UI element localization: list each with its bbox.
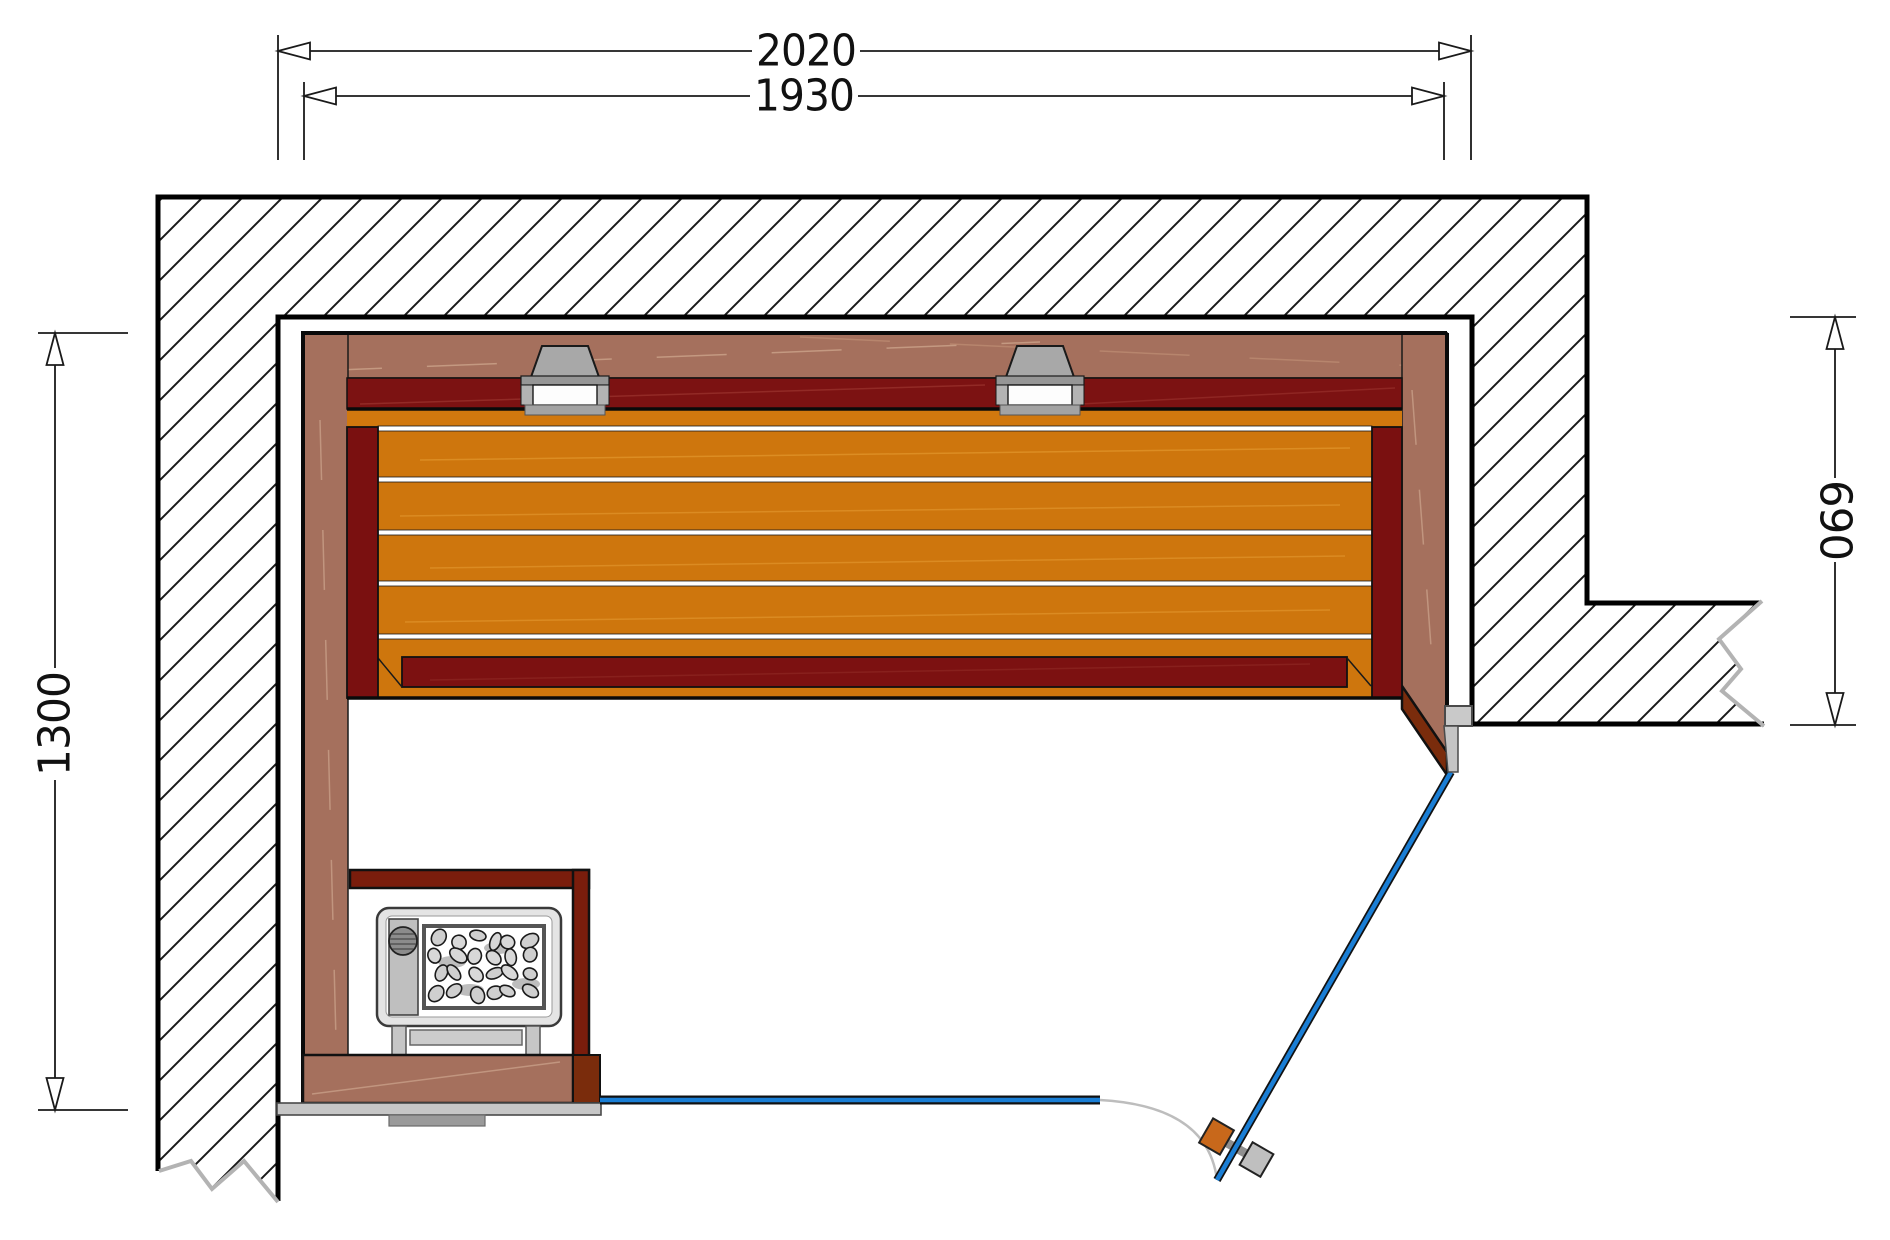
sauna-cabin (277, 333, 1472, 1180)
fixture-side (521, 385, 533, 405)
door-handle-inner (1199, 1118, 1234, 1154)
heater-area (350, 870, 589, 1058)
dim-label-width-inner: 1930 (754, 71, 854, 122)
fixture-base (1000, 405, 1080, 415)
heater-leg (526, 1026, 540, 1056)
right-panel-board (1402, 333, 1447, 752)
dim-label-width-outer: 2020 (756, 26, 856, 77)
dimension-depth: 1300 (30, 333, 129, 1110)
bench-back-strip (347, 409, 1402, 427)
fixture-side (1072, 385, 1084, 405)
heater-tray (410, 1030, 522, 1045)
arrowhead-icon (47, 333, 64, 365)
fixture-side (597, 385, 609, 405)
floor-strip (389, 1115, 485, 1126)
glass-door (1100, 706, 1472, 1180)
arrowhead-icon (47, 1078, 64, 1110)
heater-guard-top (350, 870, 589, 888)
back-wall-panel (303, 333, 1447, 378)
slat-gap (378, 634, 1372, 639)
bench-end-board-left (347, 427, 378, 698)
back-panel-board (303, 333, 1447, 378)
backrest (347, 378, 1402, 409)
left-wall-panel (303, 333, 348, 1103)
slat-gap (378, 477, 1372, 482)
front-jamb-block (573, 1055, 600, 1103)
sauna-floor-plan: 2020 1930 1300 690 (0, 0, 1890, 1240)
sauna-heater (377, 908, 561, 1056)
bench (347, 409, 1402, 698)
arrowhead-icon (304, 88, 336, 105)
door-handle-outer (1240, 1142, 1274, 1177)
door-threshold (277, 1103, 601, 1115)
door-swing-arc (1100, 1100, 1217, 1180)
heater-guard-right (573, 870, 589, 1058)
dim-label-depth: 1300 (30, 672, 81, 776)
heater-control-knob (389, 927, 417, 955)
dimension-right-height: 690 (1790, 317, 1861, 725)
fixture-side (996, 385, 1008, 405)
arrowhead-icon (1439, 43, 1471, 60)
fixture-bar (996, 376, 1084, 385)
arrowhead-icon (1827, 693, 1844, 725)
floor-plan-canvas: 2020 1930 1300 690 (0, 0, 1890, 1240)
right-wall-panel (1402, 333, 1447, 775)
light-fixture-icon (531, 346, 599, 377)
arrowhead-icon (1412, 88, 1444, 105)
arrowhead-icon (278, 43, 310, 60)
dim-label-right-height: 690 (1810, 480, 1861, 560)
fixture-base (525, 405, 605, 415)
front-wall-board (303, 1055, 573, 1103)
arrowhead-icon (1827, 317, 1844, 349)
heater-leg (392, 1026, 406, 1056)
fixture-bar (521, 376, 609, 385)
door-pane (1217, 772, 1451, 1180)
backrest-board (347, 378, 1402, 409)
dimension-width-inner: 1930 (304, 71, 1444, 161)
dimension-width-outer: 2020 (278, 26, 1471, 161)
fixture-lens (533, 385, 597, 405)
slat-gap (378, 581, 1372, 586)
left-panel-board (303, 333, 348, 1103)
light-fixture-icon (1006, 346, 1074, 377)
front-wall (277, 1055, 601, 1126)
door-sill-block (1445, 706, 1472, 726)
fixture-lens (1008, 385, 1072, 405)
slat-gap (378, 530, 1372, 535)
slat-gap (378, 426, 1372, 431)
bench-end-board-right (1372, 427, 1402, 698)
